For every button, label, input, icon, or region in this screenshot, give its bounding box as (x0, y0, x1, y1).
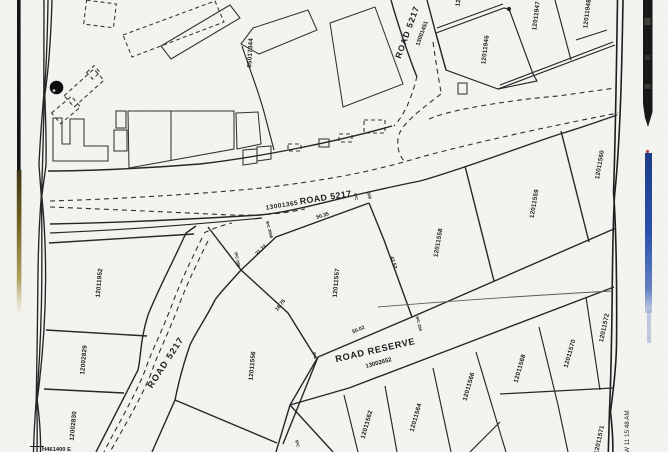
svg-text:12: 12 (455, 0, 463, 7)
svg-text:W 11 15:48 AM: W 11 15:48 AM (624, 410, 631, 452)
svg-text:H461400 E: H461400 E (42, 447, 71, 452)
